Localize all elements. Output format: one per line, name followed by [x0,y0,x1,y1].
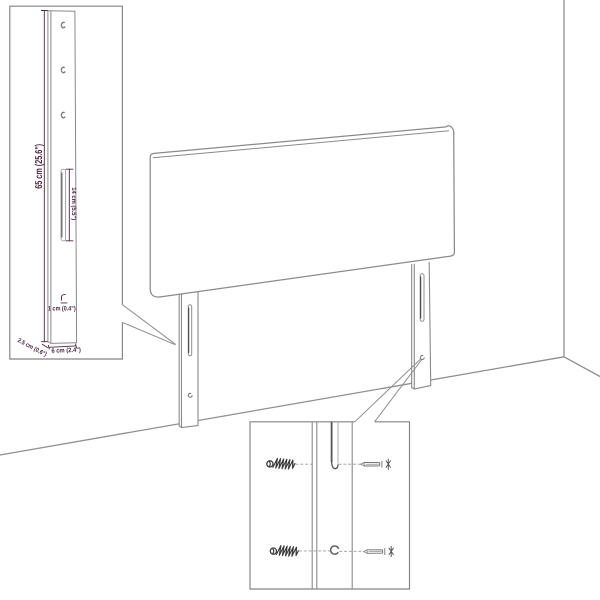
svg-text:1 cm (0.4"): 1 cm (0.4") [48,305,76,312]
svg-text:6 cm (2.4"): 6 cm (2.4") [51,347,81,355]
svg-text:14 cm (5.5"): 14 cm (5.5") [70,187,77,220]
svg-text:65 cm (25.6"): 65 cm (25.6") [34,144,45,189]
